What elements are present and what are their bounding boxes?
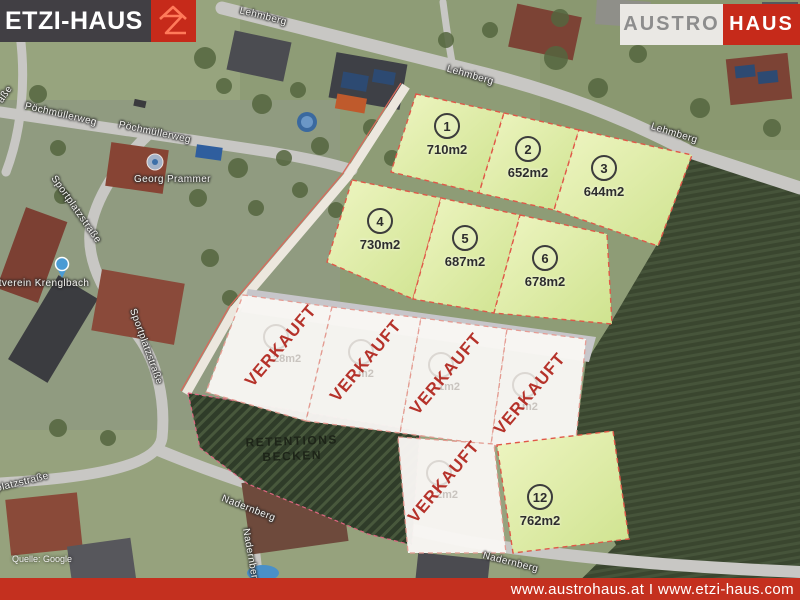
etzi-z-house-icon — [151, 0, 196, 42]
plot-size: 644m2 — [569, 184, 639, 199]
etzi-haus-logo: ETZI-HAUS — [0, 0, 196, 42]
plot-size: 687m2 — [430, 254, 500, 269]
plot-size: 652m2 — [493, 165, 563, 180]
satellite-map — [0, 0, 800, 600]
plot-size: 710m2 — [412, 142, 482, 157]
footer-bar: www.austrohaus.at I www.etzi-haus.com — [0, 578, 800, 600]
sold-plot-7: 28m2 VERKAUFT — [239, 304, 323, 388]
plot-label-12: 12 762m2 — [505, 484, 575, 528]
austrohaus-logo: AUSTRO HAUS — [620, 4, 800, 45]
screenshot-root: Lehmberg Lehmberg Lehmberg Pöchmüllerweg… — [0, 0, 800, 600]
footer-urls: www.austrohaus.at I www.etzi-haus.com — [511, 581, 794, 598]
verkauft-label: VERKAUFT — [490, 349, 570, 439]
plot-size: 678m2 — [510, 274, 580, 289]
plot-label-6: 6 678m2 — [510, 245, 580, 289]
plot-label-2: 2 652m2 — [493, 136, 563, 180]
poi-label-sportverein: Sportverein Krenglbach — [0, 278, 89, 289]
poi-pin-head — [56, 258, 69, 271]
plot-number-badge: 12 — [527, 484, 553, 510]
plot-number-badge: 1 — [434, 113, 460, 139]
austro-wordmark-gray: AUSTRO — [620, 4, 723, 45]
plot-number-badge: 4 — [367, 208, 393, 234]
plot-label-4: 4 730m2 — [345, 208, 415, 252]
poi-dot-center — [152, 159, 158, 165]
plot-label-3: 3 644m2 — [569, 155, 639, 199]
plot-label-1: 1 710m2 — [412, 113, 482, 157]
map-attribution: Quelle: Google — [12, 554, 72, 564]
plot-label-5: 5 687m2 — [430, 225, 500, 269]
plot-number-badge: 6 — [532, 245, 558, 271]
sold-plot-11: 2m2 VERKAUFT — [402, 440, 486, 524]
plot-number-badge: 3 — [591, 155, 617, 181]
poi-label-georg-prammer: Georg Prammer — [134, 174, 211, 185]
verkauft-label: VERKAUFT — [406, 329, 486, 419]
etzi-haus-wordmark: ETZI-HAUS — [0, 0, 151, 42]
sold-plot-8: m2 VERKAUFT — [324, 319, 408, 403]
sold-plot-9: 1m2 VERKAUFT — [404, 332, 488, 416]
plot-size: 730m2 — [345, 237, 415, 252]
verkauft-label: VERKAUFT — [241, 301, 321, 391]
verkauft-label: VERKAUFT — [404, 437, 484, 527]
verkauft-label: VERKAUFT — [326, 316, 406, 406]
plot-number-badge: 2 — [515, 136, 541, 162]
sold-plot-10: m2 VERKAUFT — [488, 352, 572, 436]
plot-size: 762m2 — [505, 513, 575, 528]
austro-wordmark-red: HAUS — [723, 4, 800, 45]
plot-number-badge: 5 — [452, 225, 478, 251]
retention-basin-label: RETENTIONS BECKEN — [232, 432, 353, 466]
